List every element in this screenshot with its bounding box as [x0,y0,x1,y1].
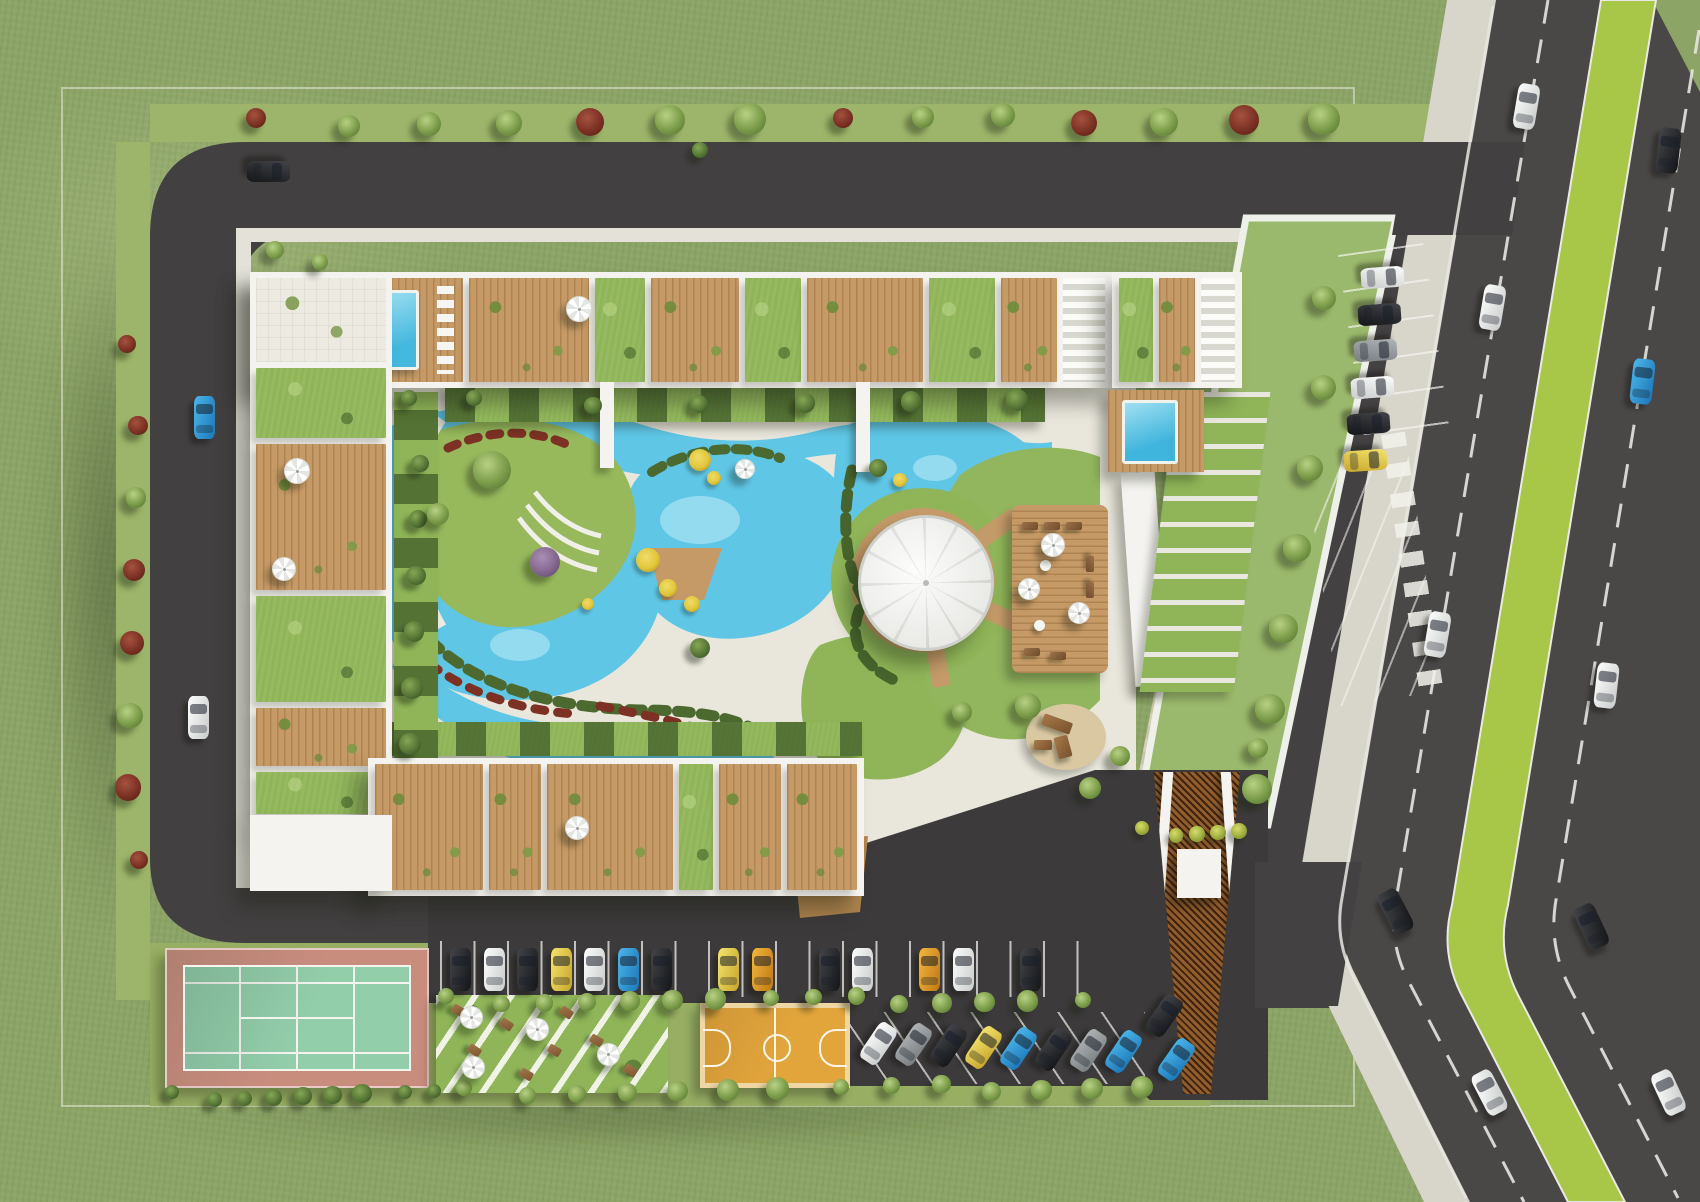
tree [1075,992,1091,1008]
car [1350,375,1394,399]
tree [473,451,511,489]
patio-umbrella [462,1056,485,1079]
car [1343,448,1387,472]
tree [1031,1080,1052,1101]
tree [1255,694,1285,724]
shrub-red [246,108,266,128]
deck-lounger [1086,582,1094,598]
shrub-red [1071,110,1097,136]
tree [1248,738,1268,758]
tree [584,397,601,414]
deck-lounger [1066,522,1082,530]
courtyard-wall [600,382,614,468]
terrace-green [929,278,995,382]
tree [848,987,866,1005]
key-right [819,1029,847,1067]
tree [1311,375,1336,400]
tree [411,455,428,472]
shrub-red [576,108,604,136]
basketball-court [700,1003,850,1088]
tree [1269,614,1298,643]
car [718,948,739,991]
flower-cluster [893,473,907,487]
patio-umbrella [566,296,592,322]
patio-umbrella [526,1018,549,1041]
car [953,948,974,991]
terrace-plaza [256,278,386,362]
car [618,948,639,991]
shrub-red [115,774,142,801]
tree [1283,534,1310,561]
gate-roof-panel [1177,849,1220,897]
flower-cluster [582,598,594,610]
tree [406,566,425,585]
car [484,948,505,991]
top-inner-walk [236,228,1246,242]
shrub-red [128,416,147,435]
flower-cluster [659,579,677,597]
roof-pool [1122,400,1178,464]
car [188,696,209,739]
tree [1110,746,1130,766]
tree [438,988,454,1004]
tree [734,103,766,135]
deck-lounger [1024,648,1040,656]
tree [265,1089,282,1106]
flower-cluster [684,596,700,612]
tree [1006,389,1028,411]
tree [932,1075,950,1093]
patio-umbrella [1018,578,1040,600]
tree [401,677,423,699]
north-junction [1392,142,1525,235]
terrace-wood [787,764,857,890]
car [1354,339,1398,363]
terrace-wood [1159,278,1195,382]
tree [1150,108,1178,136]
tree [620,991,639,1010]
patio-umbrella [597,1043,620,1066]
terrace-green [256,772,386,814]
car [551,948,572,991]
tennis-court [165,948,429,1088]
tree [717,1079,739,1101]
car [819,948,840,991]
tree [456,1080,472,1096]
east-residential-block [1112,272,1242,388]
shrub-red [833,108,853,128]
patio-umbrella [1068,602,1090,624]
shrub-red [130,851,148,869]
terrace-green [595,278,645,382]
tree [536,994,554,1012]
patio-umbrella [1041,533,1065,557]
tree [795,393,814,412]
tree [1169,828,1184,843]
shrub-red [118,335,136,353]
terrace-wood [469,278,589,382]
car [919,948,940,991]
terrace-wood [719,764,781,890]
patio-umbrella [272,557,296,581]
tree [266,241,284,259]
shrub-red [120,631,144,655]
tree [1189,826,1204,841]
patio-umbrella [460,1006,483,1029]
terrace-green [1119,278,1153,382]
north-hedge-band [445,384,1045,422]
tree [398,1085,412,1099]
tennis-court-surface [183,965,411,1071]
patio-umbrella [284,458,310,484]
terrace-wood [256,708,386,766]
tree [1308,103,1340,135]
tree [466,390,482,406]
tree [690,638,710,658]
tree [401,390,417,406]
car [852,948,873,991]
tree [1210,825,1226,841]
car [517,948,538,991]
flower-cluster [707,471,721,485]
tree [427,503,449,525]
tree [530,547,560,577]
tree [883,1077,900,1094]
terrace-green [745,278,801,382]
left-inner-walk [236,242,251,888]
car [651,948,672,991]
car [584,948,605,991]
patio-umbrella [735,459,755,479]
tree [207,1092,222,1107]
tree [932,993,951,1012]
shrub-red [1229,105,1259,135]
tree [1079,777,1101,799]
tree [1312,286,1336,310]
tree [338,115,360,137]
car [1020,948,1041,991]
terrace-steps [1063,278,1105,382]
car [1357,302,1401,326]
tree [1017,990,1038,1011]
courtyard-wall [856,382,870,472]
west-residential-block [250,272,392,820]
tree [519,1087,536,1104]
terrace-green [256,596,386,702]
deck-lounger [1086,556,1094,572]
tree [833,1079,849,1095]
tree [901,391,922,412]
tree [236,1091,252,1107]
terrace-wood [489,764,541,890]
terrace-green [256,368,386,438]
tree [974,992,994,1012]
tree [766,1077,789,1100]
aerial-site-plan [0,0,1700,1202]
tree [117,703,142,728]
deck-table [1040,560,1051,571]
tree [952,702,972,722]
car [194,396,215,439]
south-residential-block [368,758,864,896]
terrace-wood [807,278,923,382]
south-hedge-band [392,722,862,756]
tree [1297,455,1323,481]
east-roof-terraces [1112,272,1242,388]
tree [1015,693,1041,719]
car [752,948,773,991]
tree [1135,821,1149,835]
car [1360,266,1404,290]
terrace-green [679,764,713,890]
south-roof-terraces [368,758,864,896]
deck-lounger [1050,652,1066,660]
west-roof-terraces [250,272,392,820]
tree [667,1081,688,1102]
tree [912,106,934,128]
car [450,948,471,991]
flower-cluster [689,449,711,471]
tree [705,988,726,1009]
tree [662,990,682,1010]
deck-lounger [1044,522,1060,530]
car [1347,412,1391,436]
sun-loungers [437,286,454,374]
tree [692,142,708,158]
tree [352,1084,371,1103]
car [1629,358,1656,405]
tree [323,1086,341,1104]
corner-plaza [250,815,392,891]
tree [404,621,425,642]
tree [294,1087,311,1104]
play-structure [1034,740,1052,750]
tree [1081,1078,1103,1100]
deck-table [1034,620,1045,631]
terrace-steps [1201,278,1235,382]
tree [869,459,887,477]
terrace-wood [651,278,739,382]
east-pool-terrace [1108,390,1204,472]
event-canopy [858,515,994,651]
tree [165,1085,179,1099]
tree [763,990,779,1006]
deck-lounger [1022,522,1038,530]
key-left [703,1029,731,1067]
center-circle [763,1034,791,1062]
terrace-wood [1001,278,1057,382]
patio-umbrella [565,816,589,840]
car [247,161,290,182]
tree [312,254,328,270]
flower-cluster [636,548,660,572]
